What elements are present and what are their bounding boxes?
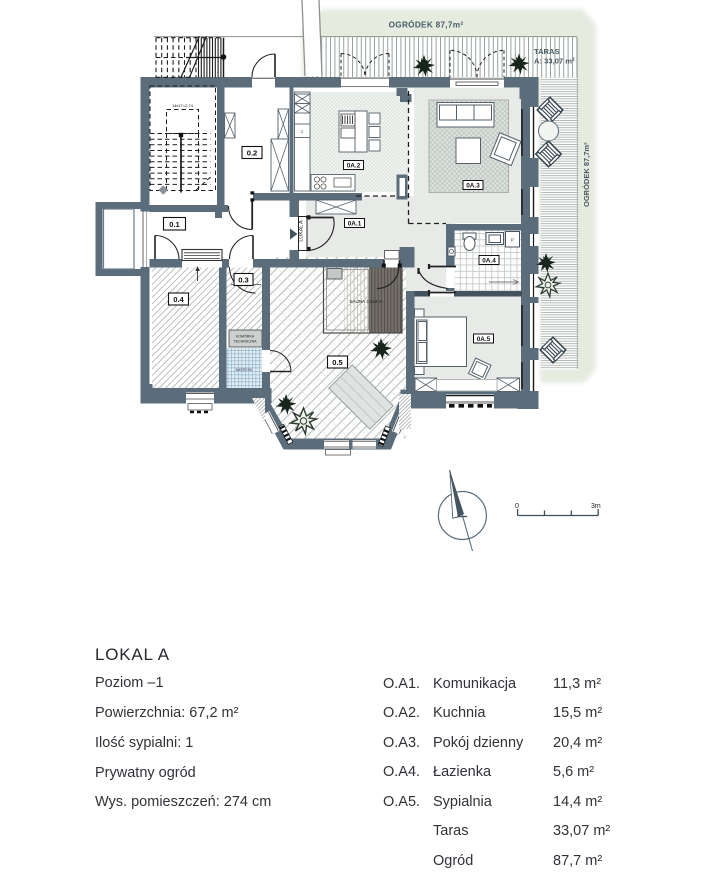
svg-text:P: P [511,238,514,243]
svg-text:SAUNA 2,5x3 m: SAUNA 2,5x3 m [349,299,382,304]
svg-text:TARAS: TARAS [534,47,560,56]
svg-text:0A.1: 0A.1 [348,221,362,228]
svg-text:0.2: 0.2 [247,149,258,158]
svg-text:3m: 3m [591,503,601,510]
svg-text:OGRÓDEK 87,7m²: OGRÓDEK 87,7m² [389,19,464,30]
svg-text:0: 0 [515,503,519,510]
svg-text:0A.4: 0A.4 [482,258,496,265]
svg-text:OGRÓDEK 87,7m²: OGRÓDEK 87,7m² [582,142,591,207]
svg-text:0.1: 0.1 [169,220,180,229]
svg-text:NATRYSK: NATRYSK [236,368,253,372]
svg-text:14x17=2,74: 14x17=2,74 [172,103,194,108]
svg-text:0A.5: 0A.5 [477,336,491,343]
svg-text:KOMÓRKA: KOMÓRKA [236,334,255,339]
svg-text:0.3: 0.3 [238,276,249,285]
svg-text:LOKAL A: LOKAL A [299,220,305,242]
svg-text:A: 33,07 m²: A: 33,07 m² [534,57,575,66]
svg-text:0.5: 0.5 [332,358,343,367]
svg-text:0A.3: 0A.3 [466,183,480,190]
svg-text:0.4: 0.4 [173,295,184,304]
svg-text:TECHNICZNA: TECHNICZNA [233,340,257,344]
svg-text:0A.2: 0A.2 [347,163,361,170]
